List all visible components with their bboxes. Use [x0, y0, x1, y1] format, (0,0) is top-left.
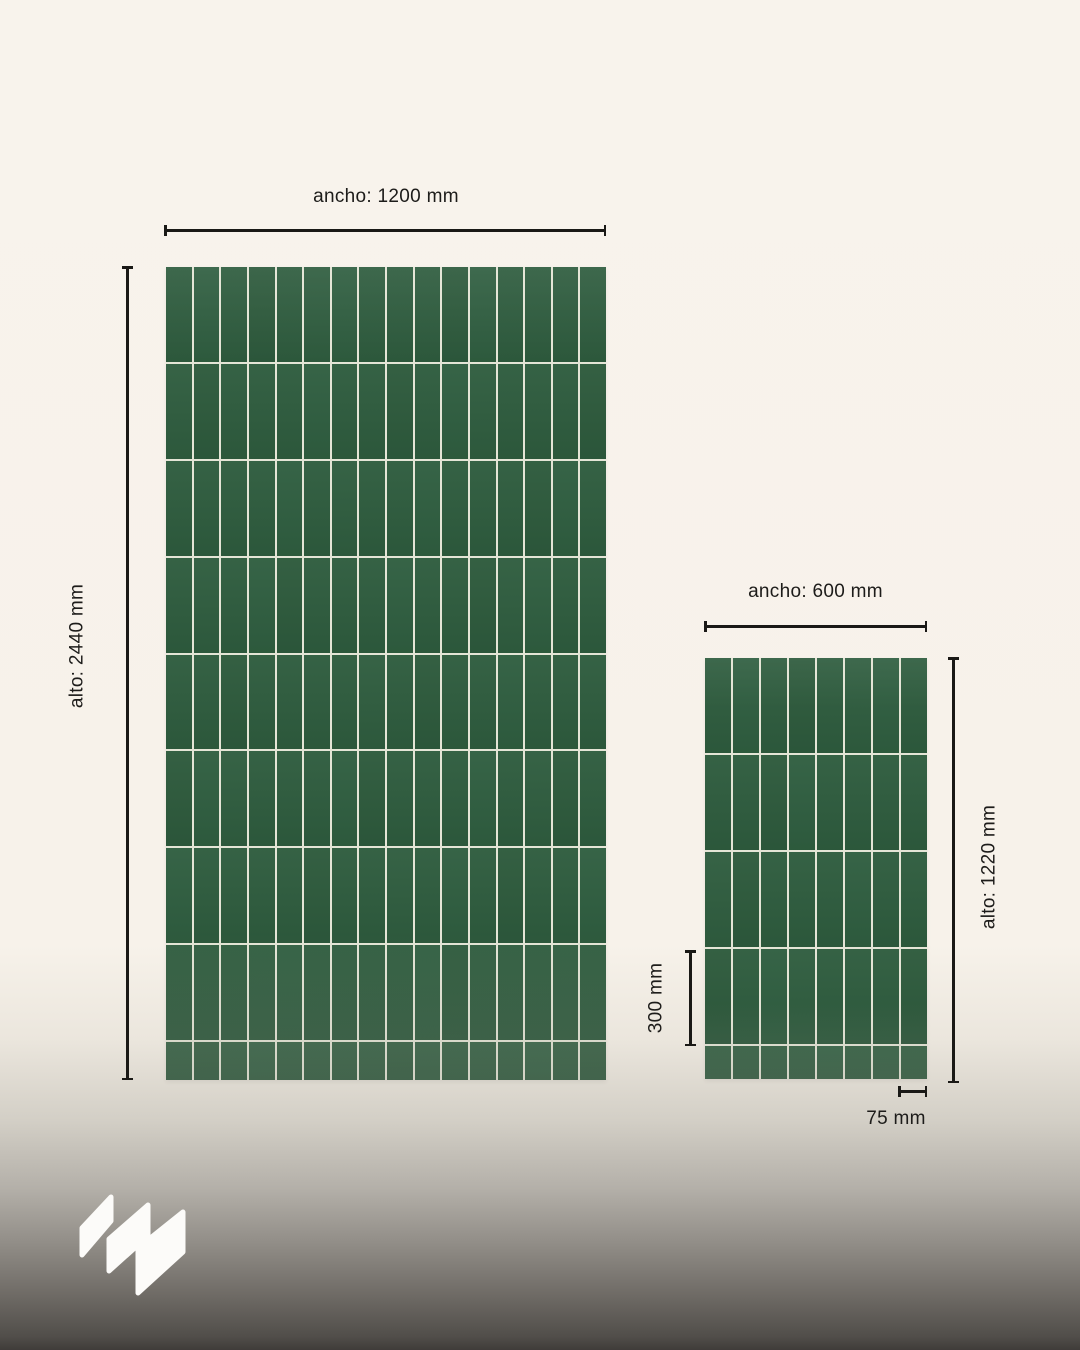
tile [249, 655, 275, 750]
tile [359, 751, 385, 846]
tile [580, 655, 606, 750]
tile [761, 852, 787, 947]
tile [359, 267, 385, 362]
tile-panel-small [705, 658, 927, 1079]
tile [332, 364, 358, 459]
tile [498, 461, 524, 556]
tile [525, 945, 551, 1040]
tile [359, 461, 385, 556]
tile [442, 461, 468, 556]
tile [277, 267, 303, 362]
brand-logo-three-diagonal-parallelograms-icon [78, 1190, 188, 1298]
tile [415, 848, 441, 943]
tile [580, 848, 606, 943]
tile [553, 945, 579, 1040]
tile [817, 949, 843, 1044]
tile [166, 751, 192, 846]
tile [580, 558, 606, 653]
tile [166, 655, 192, 750]
tile [498, 267, 524, 362]
tile [221, 461, 247, 556]
tile [249, 945, 275, 1040]
tile [442, 558, 468, 653]
tile [387, 558, 413, 653]
tile [194, 655, 220, 750]
tile [525, 364, 551, 459]
tile [304, 364, 330, 459]
tile [470, 751, 496, 846]
tile [166, 558, 192, 653]
tile-width-dimension-line [899, 1090, 926, 1093]
large-panel-width-dimension-line [165, 229, 605, 232]
tile [194, 267, 220, 362]
tile [442, 945, 468, 1040]
tile [277, 945, 303, 1040]
tile [166, 1042, 192, 1080]
tile [553, 364, 579, 459]
tile [194, 945, 220, 1040]
tile [277, 751, 303, 846]
tile [332, 267, 358, 362]
tile [332, 558, 358, 653]
tile [845, 852, 871, 947]
tile [277, 655, 303, 750]
tile [304, 461, 330, 556]
tile [304, 751, 330, 846]
tile [733, 852, 759, 947]
tile [304, 945, 330, 1040]
tile [845, 658, 871, 753]
tile [873, 1046, 899, 1079]
tile [817, 1046, 843, 1079]
tile [387, 751, 413, 846]
tile [415, 945, 441, 1040]
tile [359, 1042, 385, 1080]
tile [733, 949, 759, 1044]
tile [845, 949, 871, 1044]
tile [470, 364, 496, 459]
tile [249, 364, 275, 459]
tile [304, 655, 330, 750]
tile [249, 1042, 275, 1080]
tile [789, 852, 815, 947]
tile [249, 848, 275, 943]
tile [415, 461, 441, 556]
tile [733, 658, 759, 753]
tile-height-label: 300 mm [645, 963, 668, 1033]
tile [387, 364, 413, 459]
tile [761, 949, 787, 1044]
tile [194, 461, 220, 556]
tile-panel-large [166, 267, 606, 1080]
tile [332, 1042, 358, 1080]
tile [194, 364, 220, 459]
tile [873, 658, 899, 753]
tile [705, 658, 731, 753]
tile [442, 1042, 468, 1080]
tile-height-dimension-line [689, 951, 692, 1045]
tile [277, 461, 303, 556]
tile [789, 755, 815, 850]
tile [304, 558, 330, 653]
tile [705, 755, 731, 850]
tile [761, 658, 787, 753]
tile [789, 1046, 815, 1079]
tile [525, 655, 551, 750]
tile [415, 364, 441, 459]
tile [873, 755, 899, 850]
tile [304, 267, 330, 362]
tile [221, 848, 247, 943]
tile [498, 945, 524, 1040]
tile [387, 848, 413, 943]
tile [277, 848, 303, 943]
tile [194, 558, 220, 653]
tile [817, 755, 843, 850]
tile [387, 1042, 413, 1080]
tile [277, 364, 303, 459]
tile [901, 658, 927, 753]
tile [845, 1046, 871, 1079]
tile [525, 848, 551, 943]
tile [498, 364, 524, 459]
tile [901, 755, 927, 850]
tile [415, 267, 441, 362]
tile [553, 461, 579, 556]
tile [580, 461, 606, 556]
tile [415, 655, 441, 750]
tile [415, 558, 441, 653]
tile [553, 267, 579, 362]
tile [332, 751, 358, 846]
small-panel-width-dimension-line [705, 625, 926, 628]
tile [873, 949, 899, 1044]
tile [332, 655, 358, 750]
small-panel-height-dimension-line [952, 658, 955, 1082]
tile [498, 655, 524, 750]
tile [442, 364, 468, 459]
tile [817, 852, 843, 947]
tile [705, 949, 731, 1044]
tile [733, 1046, 759, 1079]
tile [498, 751, 524, 846]
tile [442, 848, 468, 943]
tile [553, 751, 579, 846]
large-panel-width-label: ancho: 1200 mm [166, 185, 606, 208]
tile [166, 364, 192, 459]
tile [387, 655, 413, 750]
tile [901, 949, 927, 1044]
tile [359, 558, 385, 653]
tile [166, 848, 192, 943]
tile [221, 751, 247, 846]
tile [789, 658, 815, 753]
tile [387, 945, 413, 1040]
tile [442, 751, 468, 846]
tile [249, 461, 275, 556]
tile [221, 558, 247, 653]
tile [221, 1042, 247, 1080]
tile [470, 848, 496, 943]
tile [901, 852, 927, 947]
tile-width-label: 75 mm [836, 1107, 956, 1130]
tile [733, 755, 759, 850]
tile [332, 461, 358, 556]
tile [498, 558, 524, 653]
tile [553, 1042, 579, 1080]
tile [761, 755, 787, 850]
tile [525, 558, 551, 653]
product-dimension-diagram: ancho: 1200 mm alto: 2440 mm ancho: 600 … [0, 0, 1080, 1350]
tile [359, 364, 385, 459]
tile [525, 267, 551, 362]
tile [873, 852, 899, 947]
tile [761, 1046, 787, 1079]
tile [553, 848, 579, 943]
tile [498, 848, 524, 943]
tile [387, 461, 413, 556]
tile [304, 848, 330, 943]
tile [166, 461, 192, 556]
tile [580, 267, 606, 362]
tile [580, 751, 606, 846]
tile [359, 945, 385, 1040]
tile [249, 558, 275, 653]
tile [442, 267, 468, 362]
tile [277, 1042, 303, 1080]
tile [525, 461, 551, 556]
tile [580, 364, 606, 459]
tile [249, 267, 275, 362]
tile [789, 949, 815, 1044]
tile [553, 655, 579, 750]
tile [221, 945, 247, 1040]
tile [498, 1042, 524, 1080]
tile [221, 267, 247, 362]
tile [470, 558, 496, 653]
tile [332, 848, 358, 943]
tile [553, 558, 579, 653]
tile [817, 658, 843, 753]
small-panel-height-label: alto: 1220 mm [978, 805, 1001, 929]
tile [901, 1046, 927, 1079]
large-panel-height-dimension-line [126, 267, 129, 1079]
tile [166, 267, 192, 362]
tile [470, 945, 496, 1040]
tile [194, 1042, 220, 1080]
small-panel-width-label: ancho: 600 mm [705, 580, 926, 603]
tile [580, 1042, 606, 1080]
tile [470, 461, 496, 556]
tile [415, 751, 441, 846]
tile [525, 1042, 551, 1080]
tile [845, 755, 871, 850]
tile [194, 751, 220, 846]
large-panel-height-label: alto: 2440 mm [66, 584, 89, 708]
tile [332, 945, 358, 1040]
tile [705, 852, 731, 947]
tile [221, 655, 247, 750]
tile [415, 1042, 441, 1080]
tile [442, 655, 468, 750]
tile [221, 364, 247, 459]
tile [387, 267, 413, 362]
tile [359, 655, 385, 750]
tile [705, 1046, 731, 1079]
tile [580, 945, 606, 1040]
tile [470, 1042, 496, 1080]
tile [470, 267, 496, 362]
tile [304, 1042, 330, 1080]
tile [470, 655, 496, 750]
tile [166, 945, 192, 1040]
tile [249, 751, 275, 846]
tile [359, 848, 385, 943]
tile [525, 751, 551, 846]
tile [277, 558, 303, 653]
tile [194, 848, 220, 943]
